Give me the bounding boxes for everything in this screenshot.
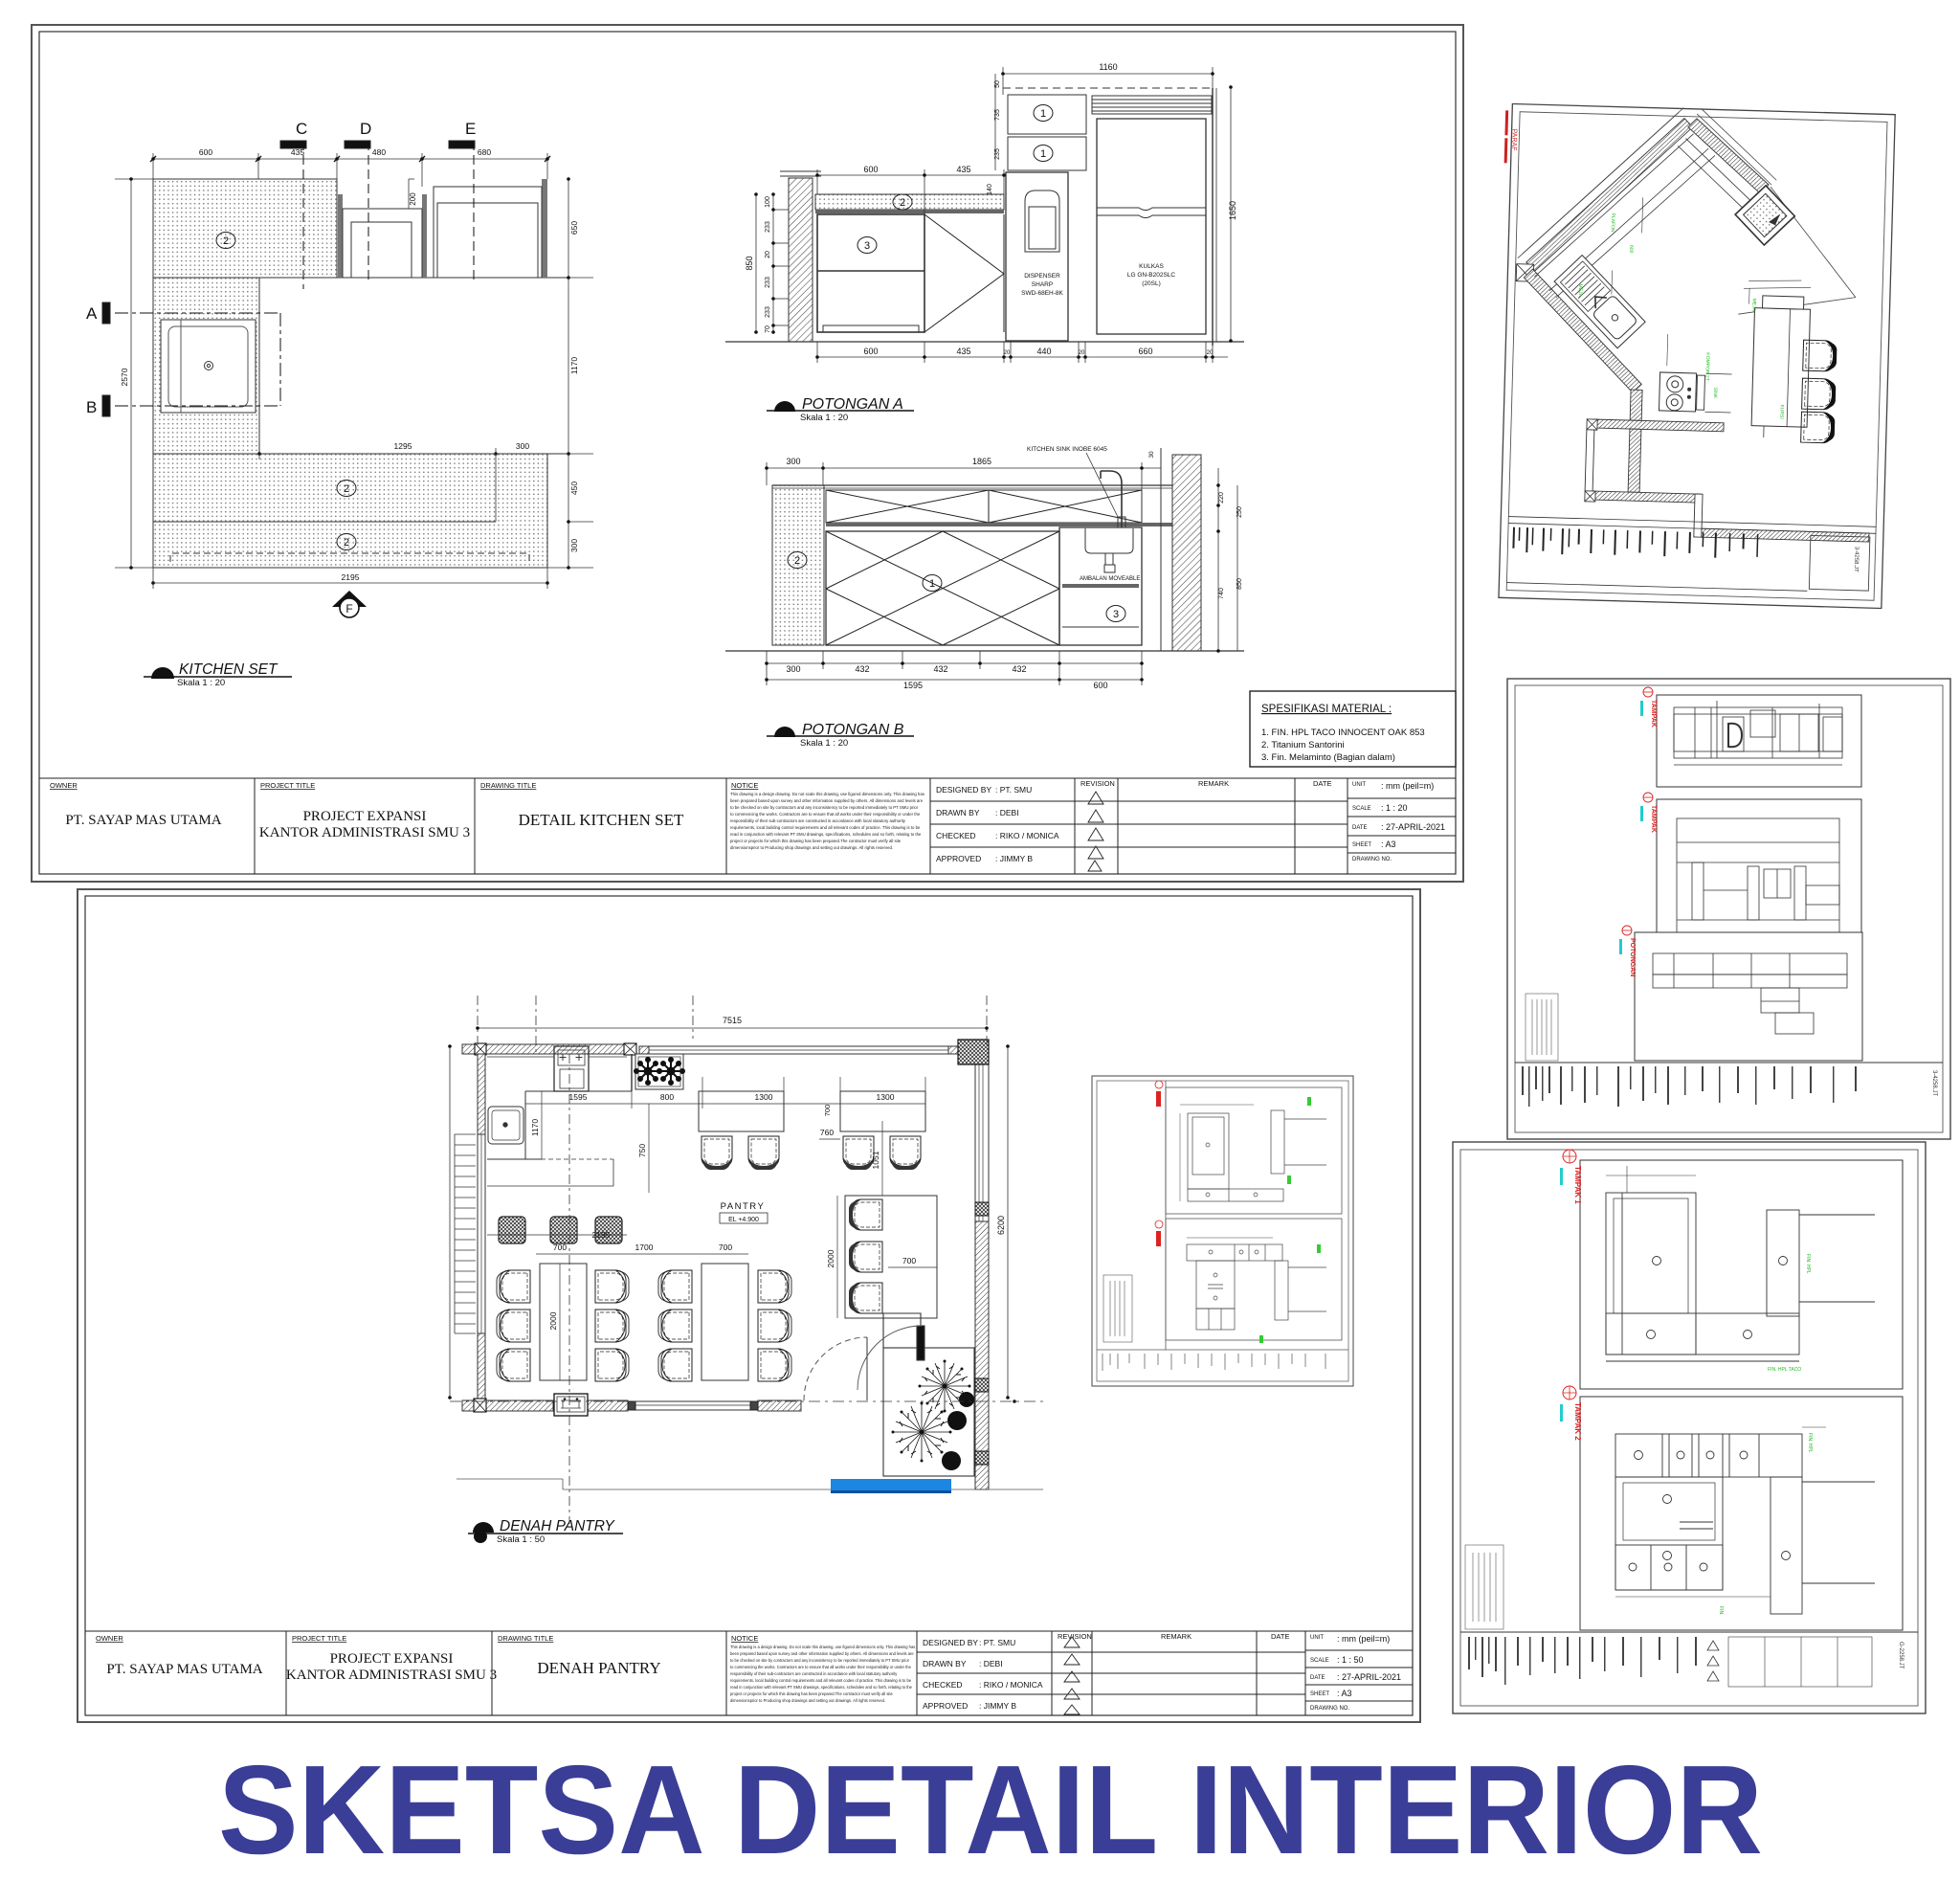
svg-text:1650: 1650	[1228, 201, 1237, 220]
svg-text:SHEET: SHEET	[1310, 1691, 1329, 1697]
svg-text:TAMPAK: TAMPAK	[1650, 805, 1657, 833]
svg-text:DESIGNED BY: DESIGNED BY	[923, 1638, 978, 1647]
svg-text:DATE: DATE	[1310, 1675, 1325, 1681]
svg-text:: 27-APRIL-2021: : 27-APRIL-2021	[1381, 822, 1445, 832]
svg-text:2195: 2195	[592, 1230, 611, 1240]
svg-text:to commencing the works. Contr: to commencing the works. Contractors are…	[730, 1665, 912, 1669]
svg-text:REMARK: REMARK	[1161, 1632, 1192, 1641]
svg-text:PT. SAYAP MAS UTAMA: PT. SAYAP MAS UTAMA	[65, 813, 221, 828]
svg-text:432: 432	[1012, 664, 1026, 674]
svg-text:435: 435	[956, 347, 970, 356]
svg-text:450: 450	[569, 481, 579, 495]
svg-text:PT. SAYAP MAS UTAMA: PT. SAYAP MAS UTAMA	[106, 1662, 262, 1677]
svg-text:Skala 1 : 50: Skala 1 : 50	[497, 1534, 545, 1545]
svg-text:MEJA: MEJA	[1750, 299, 1756, 312]
svg-text:100: 100	[765, 196, 771, 208]
svg-text:140: 140	[987, 184, 993, 195]
svg-text:TAMPAK: TAMPAK	[1650, 700, 1657, 728]
svg-text:REVISION: REVISION	[1058, 1632, 1092, 1641]
svg-text:DRAWING TITLE: DRAWING TITLE	[498, 1634, 553, 1643]
svg-text:: RIKO / MONICA: : RIKO / MONICA	[979, 1680, 1043, 1690]
svg-text:FIN. HPL: FIN. HPL	[1807, 1433, 1813, 1453]
svg-text:SKETSA DETAIL INTERIOR: SKETSA DETAIL INTERIOR	[218, 1739, 1763, 1881]
svg-text:233: 233	[765, 221, 771, 233]
svg-text:DISPENSER: DISPENSER	[1024, 273, 1060, 280]
svg-text:1. FIN. HPL TACO INNOCENT OAK: 1. FIN. HPL TACO INNOCENT OAK 853	[1261, 728, 1425, 738]
svg-text:432: 432	[855, 664, 869, 674]
svg-text:2: 2	[344, 483, 349, 495]
svg-text:E: E	[465, 120, 476, 138]
svg-text:440: 440	[1036, 347, 1051, 356]
svg-text:G-2258.JT: G-2258.JT	[1898, 1642, 1904, 1669]
svg-text:requirements, local building c: requirements, local building control req…	[730, 825, 921, 830]
svg-text:requirements, local building c: requirements, local building control req…	[730, 1678, 912, 1683]
svg-text:SHEET: SHEET	[1352, 842, 1371, 848]
svg-text:KITCHEN SINK INOBE 6045: KITCHEN SINK INOBE 6045	[1027, 446, 1107, 453]
svg-text:to commencing the works. Contr: to commencing the works. Contractors are…	[730, 812, 921, 817]
svg-text:: 1 : 20: : 1 : 20	[1381, 803, 1408, 813]
svg-text:PROJECT TITLE: PROJECT TITLE	[260, 781, 315, 790]
svg-text:3-4258.JT: 3-4258.JT	[1853, 547, 1860, 573]
svg-text:EL +4.900: EL +4.900	[728, 1217, 759, 1223]
svg-text:250: 250	[1236, 506, 1243, 518]
svg-text:: mm (peil=m): : mm (peil=m)	[1381, 781, 1434, 791]
svg-text:2570: 2570	[120, 368, 129, 386]
svg-text:20: 20	[1079, 350, 1085, 356]
svg-text:850: 850	[1236, 578, 1243, 590]
svg-text:UNIT: UNIT	[1310, 1635, 1324, 1641]
svg-text:SINK: SINK	[1712, 387, 1718, 398]
svg-text:DRAWING NO.: DRAWING NO.	[1352, 857, 1392, 862]
svg-text:700: 700	[823, 1105, 832, 1117]
svg-text:480: 480	[372, 147, 386, 157]
svg-text:233: 233	[765, 277, 771, 288]
svg-text:responsibility of their sub-co: responsibility of their sub-contractors …	[730, 1671, 898, 1676]
svg-text:: PT. SMU: : PT. SMU	[995, 785, 1032, 795]
svg-text:KITCHEN SET: KITCHEN SET	[179, 661, 278, 678]
svg-text:LG GN-B202SLC: LG GN-B202SLC	[1127, 272, 1176, 279]
svg-text:20: 20	[765, 251, 771, 258]
svg-text:1: 1	[1040, 108, 1046, 120]
svg-text:KANTOR ADMINISTRASI SMU 3: KANTOR ADMINISTRASI SMU 3	[286, 1668, 497, 1683]
svg-text:TAMPAK 2: TAMPAK 2	[1573, 1402, 1582, 1441]
svg-text:POTONGAN A: POTONGAN A	[802, 396, 903, 413]
svg-text:D: D	[360, 120, 371, 138]
svg-text:20: 20	[1207, 350, 1214, 356]
svg-text:300: 300	[786, 664, 800, 674]
svg-text:1: 1	[1040, 148, 1046, 160]
svg-text:been prepared based upon surve: been prepared based upon survey and othe…	[730, 1651, 914, 1656]
svg-text:OWNER: OWNER	[50, 781, 78, 790]
svg-text:DRAWN BY: DRAWN BY	[923, 1659, 967, 1668]
svg-text:Skala 1 : 20: Skala 1 : 20	[800, 738, 848, 749]
svg-text:REMARK: REMARK	[1198, 779, 1229, 788]
svg-text:: A3: : A3	[1337, 1689, 1352, 1698]
svg-text:responsibility of their sub-co: responsibility of their sub-contractors …	[730, 818, 906, 823]
svg-text:F: F	[345, 602, 352, 616]
svg-text:PROJECT TITLE: PROJECT TITLE	[292, 1634, 346, 1643]
svg-text:220: 220	[1218, 492, 1225, 504]
svg-text:2: 2	[223, 235, 229, 247]
svg-text:1595: 1595	[569, 1092, 588, 1102]
svg-text:1595: 1595	[903, 681, 923, 690]
svg-text:This drawing is a design drawi: This drawing is a design drawing. Do not…	[730, 1645, 915, 1649]
svg-text:DENAH PANTRY: DENAH PANTRY	[500, 1518, 615, 1534]
svg-text:235: 235	[994, 148, 1001, 160]
svg-text:DATE: DATE	[1271, 1632, 1289, 1641]
svg-text:200: 200	[409, 192, 417, 206]
svg-text:FIN.: FIN.	[1718, 1606, 1724, 1615]
svg-text:20: 20	[1004, 350, 1011, 356]
svg-text:KURSI: KURSI	[1778, 404, 1784, 418]
svg-text:DRAWING NO.: DRAWING NO.	[1310, 1706, 1349, 1712]
svg-text:7515: 7515	[723, 1016, 742, 1025]
svg-text:DATE: DATE	[1352, 825, 1368, 831]
svg-text:: PT. SMU: : PT. SMU	[979, 1638, 1015, 1647]
svg-text:432: 432	[933, 664, 947, 674]
svg-text:600: 600	[863, 165, 878, 174]
svg-text:NOTICE: NOTICE	[731, 1634, 758, 1643]
svg-text:FIN. HPL: FIN. HPL	[1805, 1254, 1811, 1274]
svg-text:FIN. HPL TACO: FIN. HPL TACO	[1768, 1367, 1801, 1373]
svg-text:750: 750	[637, 1144, 647, 1157]
svg-text:APPROVED: APPROVED	[936, 854, 981, 863]
svg-text:APPROVED: APPROVED	[923, 1701, 968, 1711]
svg-text:30: 30	[1148, 451, 1155, 459]
svg-text:read in conjunction with relev: read in conjunction with relevant PT SMU…	[730, 832, 922, 837]
svg-text:A: A	[86, 304, 98, 323]
svg-text:NOTICE: NOTICE	[731, 781, 758, 790]
svg-text:: JIMMY B: : JIMMY B	[995, 854, 1033, 863]
svg-text:PLAFON: PLAFON	[1610, 213, 1616, 233]
svg-text:dimensionsprior to Producing s: dimensionsprior to Producing shop drawin…	[730, 1698, 885, 1703]
svg-text:700: 700	[902, 1256, 916, 1265]
svg-text:2000: 2000	[826, 1249, 835, 1267]
svg-text:300: 300	[786, 457, 800, 466]
svg-text:KOMPOR 2T: KOMPOR 2T	[1704, 352, 1710, 381]
svg-text:CHECKED: CHECKED	[936, 831, 976, 840]
svg-text:760: 760	[820, 1128, 834, 1137]
svg-text:1170: 1170	[530, 1119, 540, 1137]
svg-text:800: 800	[660, 1092, 674, 1102]
svg-text:OWNER: OWNER	[96, 1634, 123, 1643]
svg-text:PARAF: PARAF	[1510, 128, 1518, 150]
svg-text:Skala 1 : 20: Skala 1 : 20	[800, 413, 848, 423]
svg-text:2195: 2195	[342, 572, 360, 582]
svg-text:233: 233	[765, 306, 771, 318]
svg-text:435: 435	[956, 165, 970, 174]
svg-text:435: 435	[291, 147, 304, 157]
svg-text:2. Titanium Santorini: 2. Titanium Santorini	[1261, 740, 1345, 750]
svg-text:740: 740	[1218, 588, 1225, 599]
svg-text:SHARP: SHARP	[1032, 281, 1053, 288]
svg-text:850: 850	[745, 256, 754, 270]
svg-text:1: 1	[929, 578, 935, 590]
svg-text:SCALE: SCALE	[1310, 1658, 1329, 1664]
svg-text:TAMPAK 1: TAMPAK 1	[1573, 1166, 1582, 1204]
svg-text:1300: 1300	[877, 1092, 895, 1102]
svg-text:680: 680	[478, 147, 491, 157]
svg-text:DRAWN BY: DRAWN BY	[936, 808, 980, 817]
svg-text:3-4258.JT: 3-4258.JT	[1931, 1070, 1937, 1096]
svg-text:700: 700	[719, 1243, 732, 1252]
svg-text:DETAIL KITCHEN SET: DETAIL KITCHEN SET	[519, 811, 684, 829]
svg-text:SWD-68EH-8K: SWD-68EH-8K	[1021, 290, 1063, 297]
svg-text:UNIT: UNIT	[1352, 782, 1366, 788]
svg-text:3. Fin. Melaminto (Bagian dala: 3. Fin. Melaminto (Bagian dalam)	[1261, 752, 1395, 763]
svg-text:6200: 6200	[996, 1216, 1006, 1235]
svg-text:POTONGAN B: POTONGAN B	[802, 722, 904, 738]
svg-text:2000: 2000	[548, 1311, 558, 1330]
svg-text:to be checked on site by contr: to be checked on site by contractors and…	[730, 805, 919, 810]
svg-text:project or projects for which: project or projects for which this drawi…	[730, 1691, 893, 1696]
svg-text:1170: 1170	[569, 357, 579, 375]
svg-text:POTONGAN: POTONGAN	[1629, 938, 1636, 976]
svg-text:SPESIFIKASI MATERIAL :: SPESIFIKASI MATERIAL :	[1261, 704, 1392, 715]
svg-text:1295: 1295	[394, 441, 412, 451]
svg-text:KULKAS: KULKAS	[1139, 263, 1164, 270]
svg-text:Skala 1 : 20: Skala 1 : 20	[177, 678, 225, 688]
svg-text:C: C	[296, 120, 307, 138]
svg-text:AMBALAN MOVEABLE: AMBALAN MOVEABLE	[1080, 576, 1140, 582]
svg-text:(20SL): (20SL)	[1142, 280, 1161, 287]
svg-text:: JIMMY B: : JIMMY B	[979, 1701, 1016, 1711]
svg-text:1300: 1300	[755, 1092, 773, 1102]
svg-text:MEJA: MEJA	[1577, 283, 1583, 297]
svg-text:to be checked on site by contr: to be checked on site by contractors and…	[730, 1658, 910, 1663]
svg-text:2: 2	[344, 537, 349, 549]
svg-text:660: 660	[1138, 347, 1152, 356]
svg-text:: 1 : 50: : 1 : 50	[1337, 1655, 1364, 1665]
svg-text:600: 600	[199, 147, 212, 157]
svg-text:600: 600	[1628, 245, 1634, 254]
svg-text:DESIGNED BY: DESIGNED BY	[936, 785, 991, 795]
svg-text:: DEBI: : DEBI	[979, 1659, 1003, 1668]
svg-text:300: 300	[516, 441, 529, 451]
svg-text:700: 700	[553, 1243, 567, 1252]
svg-text:KANTOR ADMINISTRASI SMU 3: KANTOR ADMINISTRASI SMU 3	[259, 825, 470, 840]
svg-text:3: 3	[1113, 609, 1119, 620]
svg-text:: DEBI: : DEBI	[995, 808, 1019, 817]
svg-text:This drawing is a design drawi: This drawing is a design drawing. Do not…	[730, 792, 924, 796]
svg-text:read in conjunction with relev: read in conjunction with relevant PT SMU…	[730, 1685, 913, 1690]
svg-text:been prepared based upon surve: been prepared based upon survey and othe…	[730, 798, 924, 803]
svg-text:B: B	[86, 398, 97, 416]
svg-text:3: 3	[864, 240, 870, 252]
svg-text:dimensionsprior to Producing s: dimensionsprior to Producing shop drawin…	[730, 845, 893, 850]
svg-text:PROJECT EXPANSI: PROJECT EXPANSI	[303, 809, 427, 824]
svg-text:: mm (peil=m): : mm (peil=m)	[1337, 1634, 1390, 1644]
svg-text:: 27-APRIL-2021: : 27-APRIL-2021	[1337, 1672, 1401, 1682]
svg-text:600: 600	[1093, 681, 1107, 690]
svg-text:2: 2	[900, 197, 905, 209]
svg-text:600: 600	[863, 347, 878, 356]
svg-text:PROJECT EXPANSI: PROJECT EXPANSI	[330, 1651, 454, 1667]
svg-text:DATE: DATE	[1313, 779, 1331, 788]
svg-text:REVISION: REVISION	[1080, 779, 1115, 788]
svg-text:DENAH PANTRY: DENAH PANTRY	[537, 1659, 660, 1677]
svg-text:2: 2	[794, 555, 800, 567]
svg-text:project or projects for which: project or projects for which this drawi…	[730, 839, 902, 843]
svg-text:DRAWING TITLE: DRAWING TITLE	[480, 781, 536, 790]
svg-text:1160: 1160	[1099, 62, 1117, 72]
svg-text:70: 70	[765, 325, 771, 333]
svg-text:SCALE: SCALE	[1352, 806, 1371, 812]
svg-text:: RIKO / MONICA: : RIKO / MONICA	[995, 831, 1059, 840]
svg-text:50: 50	[994, 80, 1001, 88]
svg-text:1865: 1865	[972, 457, 991, 466]
svg-text:1700: 1700	[635, 1243, 654, 1252]
svg-text:: A3: : A3	[1381, 840, 1396, 849]
svg-text:1051: 1051	[871, 1151, 880, 1169]
svg-text:PANTRY: PANTRY	[721, 1201, 766, 1212]
svg-text:650: 650	[569, 221, 579, 235]
svg-text:CHECKED: CHECKED	[923, 1680, 963, 1690]
svg-text:300: 300	[569, 539, 579, 552]
svg-text:735: 735	[994, 109, 1001, 121]
